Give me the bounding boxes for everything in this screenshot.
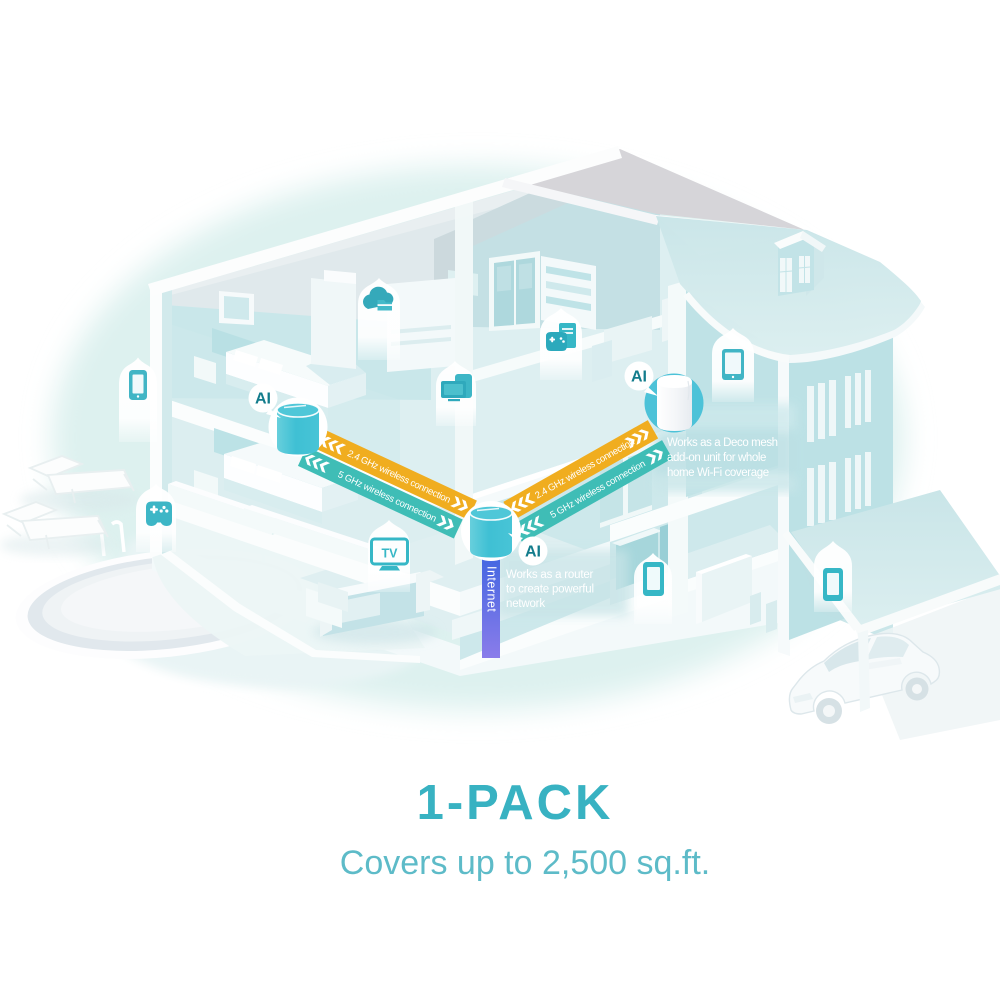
svg-text:add-on unit for whole: add-on unit for whole [667,452,766,464]
svg-text:to create powerful: to create powerful [506,583,594,595]
svg-text:AI: AI [631,369,647,386]
svg-text:Internet: Internet [485,566,499,612]
svg-text:Works as a Deco mesh: Works as a Deco mesh [667,437,778,449]
svg-text:AI: AI [255,391,271,408]
svg-text:network: network [506,598,545,610]
svg-text:TV: TV [382,547,399,561]
svg-text:AI: AI [525,544,541,561]
svg-text:Works as a router: Works as a router [506,569,594,581]
svg-text:home Wi-Fi coverage: home Wi-Fi coverage [667,467,769,479]
